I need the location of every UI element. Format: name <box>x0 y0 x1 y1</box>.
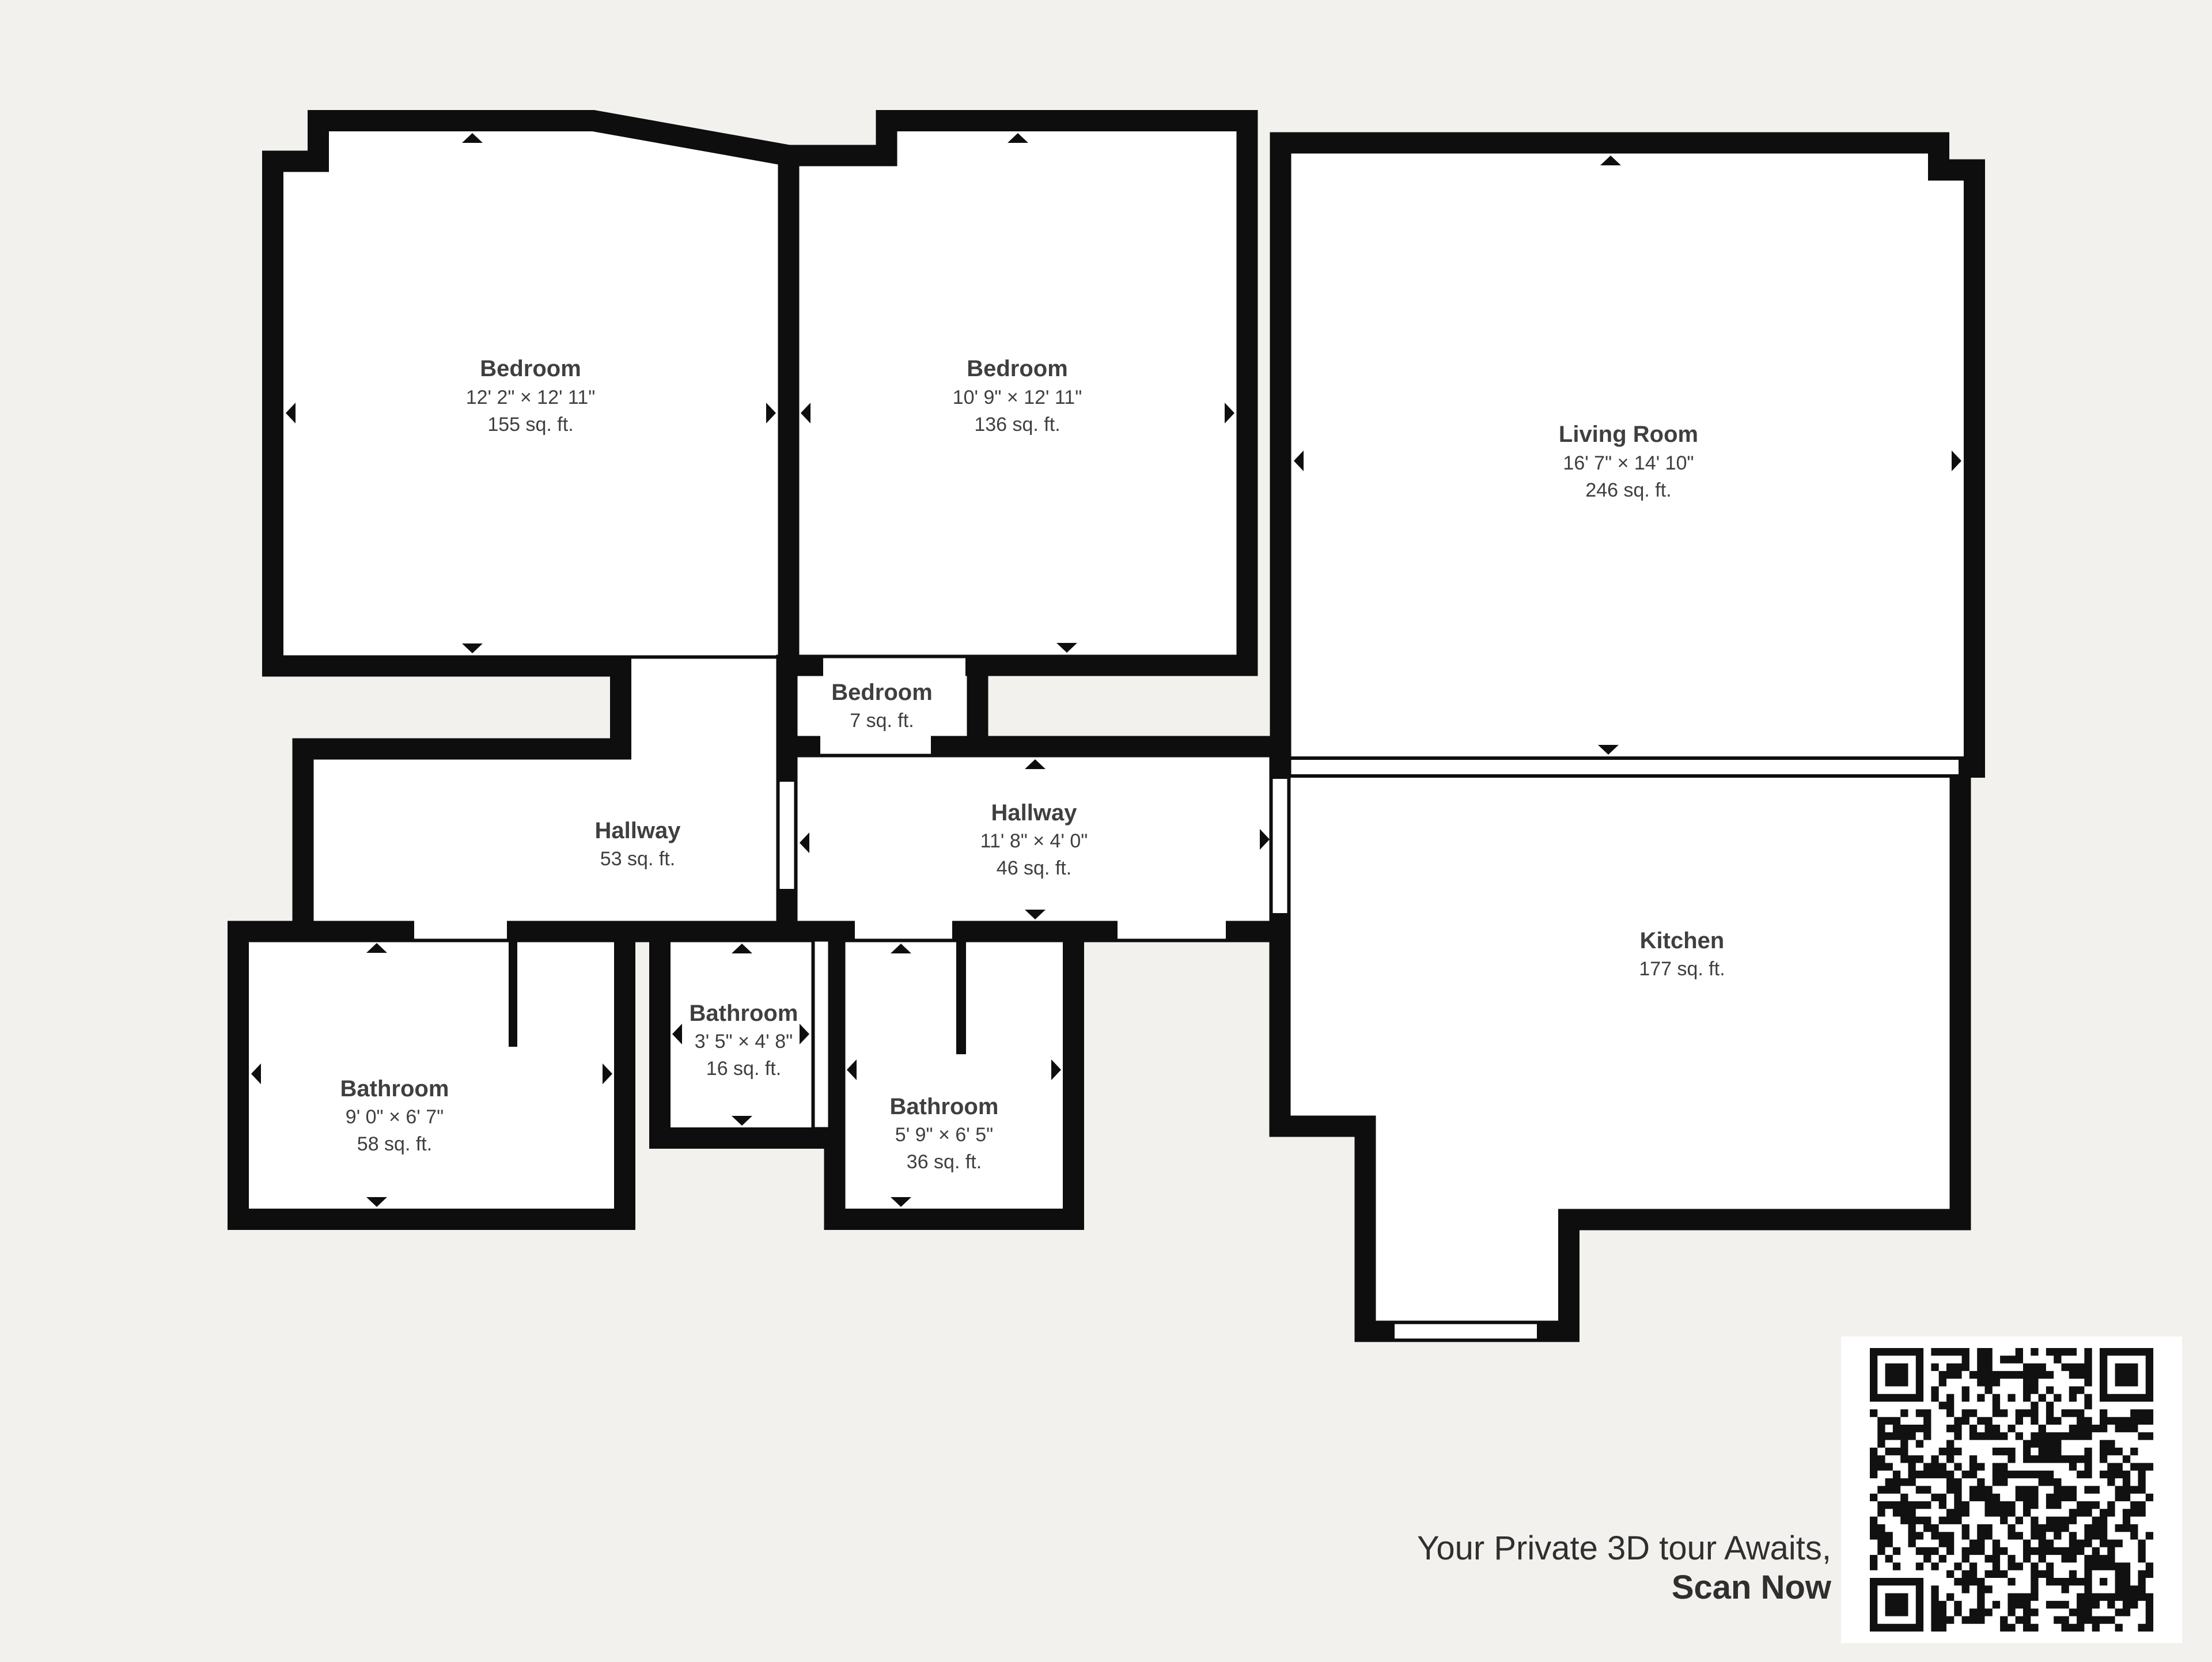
svg-text:Bathroom: Bathroom <box>340 1076 449 1101</box>
svg-text:Bedroom: Bedroom <box>831 680 933 705</box>
svg-text:58 sq. ft.: 58 sq. ft. <box>357 1133 432 1155</box>
svg-text:12' 2" × 12' 11": 12' 2" × 12' 11" <box>466 387 596 408</box>
svg-text:177 sq. ft.: 177 sq. ft. <box>1639 958 1725 980</box>
svg-text:16 sq. ft.: 16 sq. ft. <box>706 1058 781 1080</box>
svg-text:Bathroom: Bathroom <box>890 1094 999 1119</box>
svg-text:Living Room: Living Room <box>1559 422 1698 447</box>
svg-text:Scan Now: Scan Now <box>1672 1569 1832 1606</box>
svg-text:5' 9" × 6' 5": 5' 9" × 6' 5" <box>895 1124 993 1146</box>
svg-text:10' 9" × 12' 11": 10' 9" × 12' 11" <box>953 387 1082 408</box>
svg-text:9' 0" × 6' 7": 9' 0" × 6' 7" <box>346 1106 444 1128</box>
svg-text:Kitchen: Kitchen <box>1640 928 1725 953</box>
svg-text:53 sq. ft.: 53 sq. ft. <box>600 848 675 870</box>
svg-text:Bathroom: Bathroom <box>690 1001 798 1026</box>
svg-text:Your Private 3D tour Awaits,: Your Private 3D tour Awaits, <box>1417 1530 1831 1567</box>
svg-text:136 sq. ft.: 136 sq. ft. <box>974 414 1060 436</box>
svg-text:Bedroom: Bedroom <box>967 356 1068 381</box>
svg-text:3' 5" × 4' 8": 3' 5" × 4' 8" <box>695 1031 793 1053</box>
svg-text:7 sq. ft.: 7 sq. ft. <box>850 710 914 732</box>
svg-text:11' 8" × 4' 0": 11' 8" × 4' 0" <box>980 830 1088 852</box>
svg-text:16' 7" × 14' 10": 16' 7" × 14' 10" <box>1563 452 1694 474</box>
svg-text:46 sq. ft.: 46 sq. ft. <box>997 857 1071 879</box>
svg-text:Bedroom: Bedroom <box>480 356 581 381</box>
svg-text:246 sq. ft.: 246 sq. ft. <box>1585 479 1671 501</box>
svg-text:36 sq. ft.: 36 sq. ft. <box>907 1151 982 1173</box>
svg-text:155 sq. ft.: 155 sq. ft. <box>487 414 573 436</box>
svg-text:Hallway: Hallway <box>991 800 1078 826</box>
svg-text:Hallway: Hallway <box>595 818 681 843</box>
